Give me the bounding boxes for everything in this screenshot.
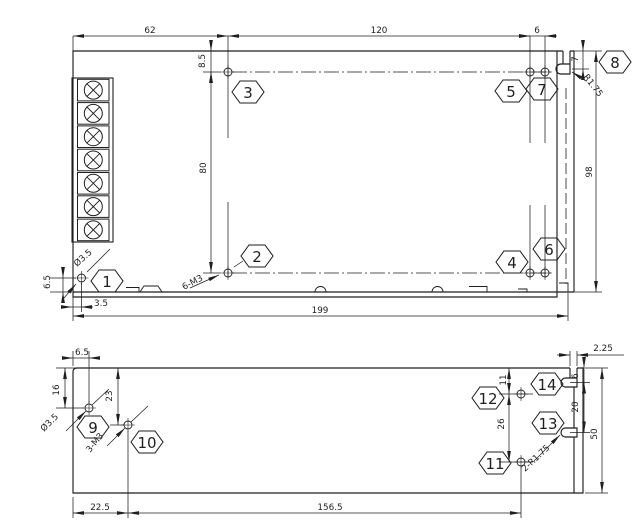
callout-number: 6	[544, 241, 554, 259]
dim-label-11: 11	[499, 374, 509, 385]
leader-hole1-arrow	[64, 284, 76, 298]
dim-label-2.25: 2.25	[593, 344, 613, 354]
callout-12: 12	[472, 387, 504, 409]
dim-label-8.5: 8.5	[198, 54, 208, 68]
dim-label-26: 26	[497, 418, 507, 430]
dim-label-50: 50	[590, 428, 600, 440]
callout-6: 6	[533, 238, 565, 260]
callout-number: 8	[610, 54, 620, 72]
dim-label-2-R1.75: 2-R1.75	[520, 443, 552, 474]
callout-13: 13	[532, 412, 564, 434]
callout-number: 2	[252, 248, 262, 266]
chassis-base-lip	[73, 292, 557, 297]
dim-label-6-M3: 6-M3	[181, 274, 205, 293]
terminal-screw-cross	[87, 154, 100, 167]
dim-label-20: 20	[571, 401, 581, 413]
callout-10: 10	[131, 431, 163, 453]
leader-hole9-arrow	[66, 411, 86, 431]
callout-9: 9	[77, 416, 109, 438]
top-view	[72, 51, 574, 297]
side-flange-keyhole-slot	[556, 51, 570, 74]
dim-label-80: 80	[199, 162, 209, 174]
dim-label-156.5: 156.5	[317, 503, 342, 513]
callout-number: 10	[137, 434, 156, 452]
callout-2: 2	[241, 245, 273, 267]
dim-label-Ø3.5: Ø3.5	[72, 247, 95, 269]
hole-marker	[75, 271, 89, 285]
callout-number: 4	[507, 254, 517, 272]
drawing-page: 1234567891011121314 6212068.580987R1.75Ø…	[0, 0, 634, 526]
dim-label-3.5: 3.5	[94, 299, 108, 309]
dim-label-62: 62	[144, 26, 155, 36]
dim-label-120: 120	[371, 26, 388, 36]
extension-lines	[50, 36, 602, 321]
terminal-block	[78, 79, 110, 240]
dimension-labels: 6212068.580987R1.75Ø3.56.53.56-M31996.51…	[38, 26, 612, 513]
dim-label-R1.75: R1.75	[581, 73, 605, 99]
callout-number: 1	[102, 273, 112, 291]
dim-label-16: 16	[52, 384, 62, 396]
terminal-screw-cross	[87, 84, 100, 97]
hole-markers	[75, 65, 553, 469]
dim-label-7: 7	[571, 56, 581, 62]
leader-hole2	[234, 261, 243, 267]
hole-marker	[523, 266, 537, 280]
dim-label-199: 199	[312, 306, 329, 316]
dim-label-22.5: 22.5	[90, 503, 110, 513]
callout-8: 8	[599, 51, 631, 73]
callout-11: 11	[479, 452, 511, 474]
terminal-screw-cross	[87, 107, 100, 120]
dim-label-6: 6	[534, 26, 540, 36]
callout-number: 13	[538, 415, 557, 433]
dim-label-6.5: 6.5	[75, 348, 89, 358]
callout-4: 4	[496, 251, 528, 273]
callout-number: 3	[243, 84, 253, 102]
callout-balloons: 1234567891011121314	[77, 51, 631, 474]
terminal-screw-cross	[87, 130, 100, 143]
dim-label-23: 23	[105, 390, 115, 401]
callout-number: 11	[485, 455, 504, 473]
hole-marker	[538, 266, 552, 280]
terminal-screw-cross	[87, 224, 100, 237]
dim-label-98: 98	[585, 166, 595, 177]
callout-7: 7	[526, 78, 558, 100]
callout-number: 14	[537, 376, 556, 394]
chassis-outline	[73, 51, 557, 292]
top-view-dimensions	[50, 36, 602, 321]
callout-14: 14	[531, 373, 563, 395]
hole-marker	[221, 266, 235, 280]
terminal-screw-cross	[87, 200, 100, 213]
callout-1: 1	[91, 270, 123, 292]
callout-number: 7	[537, 81, 547, 99]
callout-number: 12	[478, 390, 497, 408]
callout-number: 5	[506, 83, 516, 101]
callout-3: 3	[232, 81, 264, 103]
leader-hole10-arrow	[107, 428, 125, 446]
dimension-drawing: 1234567891011121314 6212068.580987R1.75Ø…	[0, 0, 634, 526]
dim-label-Ø3.5: Ø3.5	[38, 412, 61, 435]
leader-hole10	[131, 406, 148, 422]
hole-marker	[514, 387, 528, 401]
hole-marker	[221, 65, 235, 79]
terminal-screw-cross	[87, 177, 100, 190]
hole-marker	[523, 65, 537, 79]
dim-label-6.5: 6.5	[43, 275, 53, 289]
callout-5: 5	[495, 80, 527, 102]
dim-label-6: 6	[571, 373, 581, 379]
hole-marker	[538, 65, 552, 79]
